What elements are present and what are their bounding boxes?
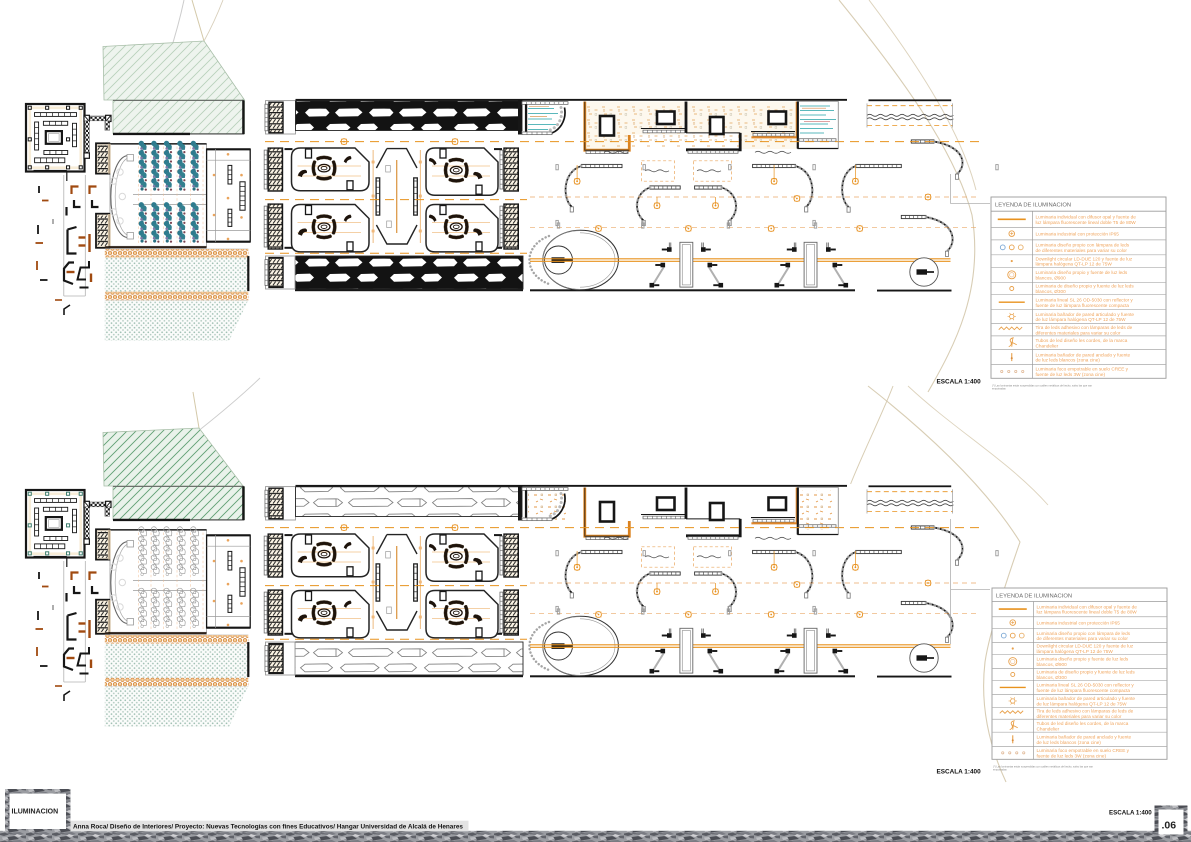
svg-text:Luminaria diseño propio y fuen: Luminaria diseño propio y fuente de luz …: [1036, 270, 1128, 275]
svg-text:Luminaria individual con difus: Luminaria individual con difusor opal y …: [1037, 604, 1138, 609]
svg-text:de diferentes materiales para: de diferentes materiales para variar su …: [1036, 248, 1128, 253]
svg-text:ILUMINACION: ILUMINACION: [12, 809, 59, 816]
svg-text:(*) Las luminarias están suspe: (*) Las luminarias están suspendidas con…: [992, 383, 1093, 387]
svg-text:LEYENDA DE ILUMINACION: LEYENDA DE ILUMINACION: [995, 202, 1071, 208]
svg-text:de diferentes materiales para: de diferentes materiales para variar su …: [1037, 636, 1129, 641]
svg-text:de luz leds blancos (zona cine: de luz leds blancos (zona cine): [1037, 740, 1102, 745]
svg-text:fuente de luz leds 3W (zona ci: fuente de luz leds 3W (zona cine): [1037, 753, 1107, 758]
svg-text:Luminaria bañador de pared art: Luminaria bañador de pared articulado y …: [1037, 696, 1136, 701]
svg-text:Tira de leds adhesivo con lámp: Tira de leds adhesivo con lámparas de le…: [1037, 709, 1134, 714]
svg-text:diferentes materiales para var: diferentes materiales para variar su col…: [1036, 330, 1121, 335]
svg-text:empotradas: empotradas: [992, 387, 1006, 391]
svg-text:ESCALA 1:400: ESCALA 1:400: [937, 378, 982, 385]
svg-text:Luminaria lineal SL 26 OD-5030: Luminaria lineal SL 26 OD-5030 con refle…: [1037, 683, 1135, 688]
svg-text:Luminaria bañador de pared art: Luminaria bañador de pared articulado y …: [1036, 312, 1135, 317]
svg-text:diferentes materiales para var: diferentes materiales para variar su col…: [1037, 714, 1122, 719]
svg-text:Luminaria bañador de pared anc: Luminaria bañador de pared anclado y fue…: [1037, 734, 1132, 739]
svg-text:lámpara halógena QT-LP 12 de: lámpara halógena QT-LP 12 de 75W: [1037, 649, 1114, 654]
svg-text:Luminaria industrial con prote: Luminaria industrial con protección IP65: [1036, 231, 1120, 236]
svg-text:fuente de luz lámpara fluoresc: fuente de luz lámpara fluorescente compa…: [1037, 688, 1131, 693]
svg-text:ESCALA 1:400: ESCALA 1:400: [937, 769, 982, 776]
svg-text:luz lámpara fluorescente linea: luz lámpara fluorescente lineal doble T5…: [1037, 610, 1138, 615]
svg-text:Luminaria individual con difus: Luminaria individual con difusor opal y …: [1036, 215, 1137, 220]
svg-text:fuente de luz lámpara fluoresc: fuente de luz lámpara fluorescente compa…: [1036, 303, 1130, 308]
svg-text:de luz lámpara halógena QT-LP: de luz lámpara halógena QT-LP 12 de 75W: [1037, 702, 1128, 707]
svg-text:Luminaria bañador de pared anc: Luminaria bañador de pared anclado y fue…: [1036, 352, 1131, 357]
svg-text:Luminaria foco empotrable en s: Luminaria foco empotrable en suelo CREE …: [1037, 748, 1130, 753]
svg-text:blancos, Ø300: blancos, Ø300: [1037, 675, 1068, 680]
svg-text:Luminaria de diseño propio y f: Luminaria de diseño propio y fuente de l…: [1036, 284, 1135, 289]
svg-text:Luminaria de diseño propio y f: Luminaria de diseño propio y fuente de l…: [1037, 670, 1136, 675]
svg-text:Downlight circular LD-DUE 120: Downlight circular LD-DUE 120 y fuente d…: [1036, 256, 1133, 261]
svg-text:Tubos de led diseño les cordes: Tubos de led diseño les cordes, de la ma…: [1037, 721, 1129, 726]
svg-text:de luz leds blancos (zona cine: de luz leds blancos (zona cine): [1036, 358, 1101, 363]
svg-text:Luminaria lineal SL 26 OD-5030: Luminaria lineal SL 26 OD-5030 con refle…: [1036, 297, 1134, 302]
svg-text:blancos, Ø900: blancos, Ø900: [1036, 275, 1067, 280]
svg-text:empotradas: empotradas: [993, 768, 1007, 772]
svg-text:Tubos de led diseño les cordes: Tubos de led diseño les cordes, de la ma…: [1036, 338, 1128, 343]
svg-text:Chandelier: Chandelier: [1036, 343, 1059, 348]
svg-text:.06: .06: [1162, 820, 1177, 832]
svg-text:blancos, Ø900: blancos, Ø900: [1037, 662, 1068, 667]
svg-text:Luminaria diseño propio con lá: Luminaria diseño propio con lámpara de l…: [1037, 631, 1131, 636]
svg-text:Luminaria industrial con prote: Luminaria industrial con protección IP65: [1037, 620, 1121, 625]
svg-text:Chandelier: Chandelier: [1037, 726, 1060, 731]
svg-text:LEYENDA DE ILUMINACION: LEYENDA DE ILUMINACION: [996, 593, 1072, 599]
svg-text:blancos, Ø300: blancos, Ø300: [1036, 289, 1067, 294]
svg-text:Downlight circular LD-DUE 120: Downlight circular LD-DUE 120 y fuente d…: [1037, 644, 1134, 649]
svg-text:Luminaria foco empotrable en s: Luminaria foco empotrable en suelo CREE …: [1036, 367, 1129, 372]
svg-text:Tira de leds adhesivo con lámp: Tira de leds adhesivo con lámparas de le…: [1036, 325, 1133, 330]
svg-text:Anna Roca/ Diseño de Interiore: Anna Roca/ Diseño de Interiores/ Proyect…: [73, 824, 463, 831]
svg-text:ESCALA 1:400: ESCALA 1:400: [1109, 810, 1152, 817]
svg-text:de luz lámpara halógena QT-LP: de luz lámpara halógena QT-LP 12 de 75W: [1036, 317, 1127, 322]
svg-text:lámpara halógena QT-LP 12 de: lámpara halógena QT-LP 12 de 75W: [1036, 262, 1113, 267]
svg-text:fuente de luz leds 3W (zona ci: fuente de luz leds 3W (zona cine): [1036, 372, 1106, 377]
svg-text:luz lámpara fluorescente linea: luz lámpara fluorescente lineal doble T5…: [1036, 220, 1137, 225]
svg-text:Luminaria diseño propio y fuen: Luminaria diseño propio y fuente de luz …: [1037, 657, 1129, 662]
svg-text:Luminaria diseño propio con lá: Luminaria diseño propio con lámpara de l…: [1036, 243, 1130, 248]
svg-text:(*) Las luminarias están suspe: (*) Las luminarias están suspendidas con…: [993, 764, 1094, 768]
